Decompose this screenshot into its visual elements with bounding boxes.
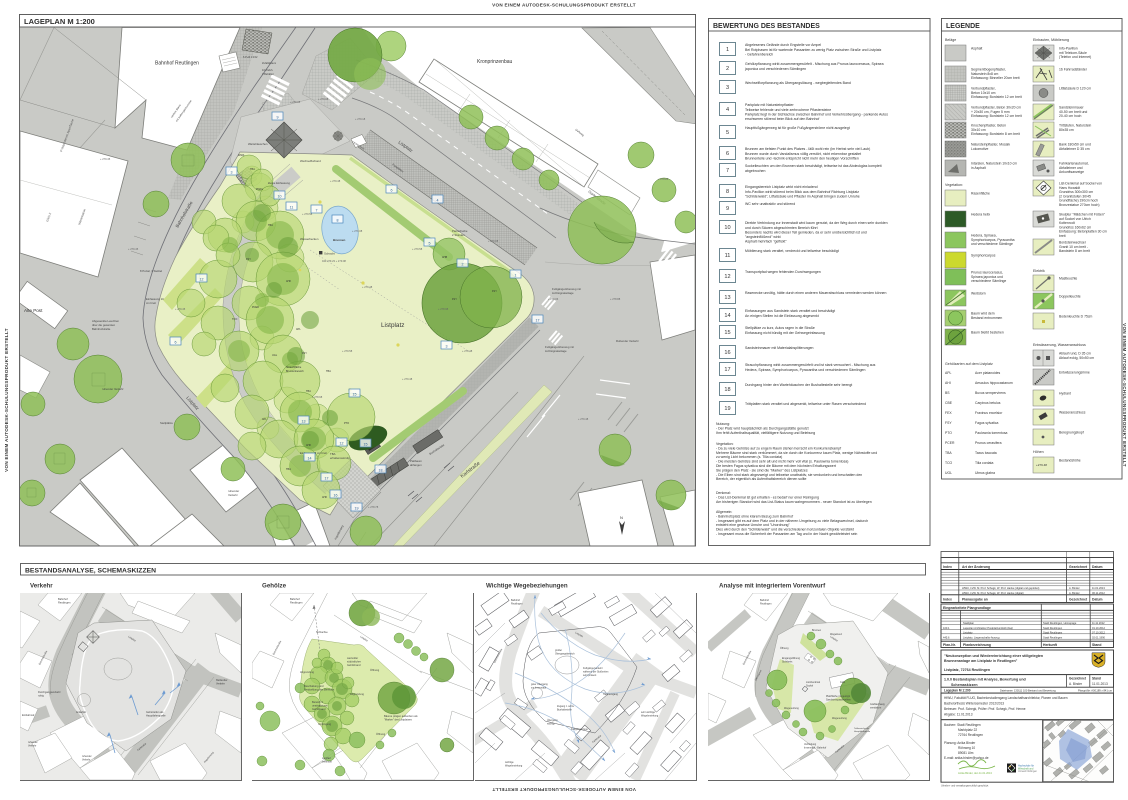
svg-text:13: 13 <box>302 420 306 424</box>
svg-text:Ablauf eckig, 50x50 cm: Ablauf eckig, 50x50 cm <box>1059 356 1094 360</box>
svg-text:PCER: PCER <box>945 441 955 445</box>
svg-text:+ 278.68: + 278.68 <box>312 395 323 399</box>
svg-text:+ 279.08: + 279.08 <box>352 229 363 233</box>
svg-text:2: 2 <box>726 66 729 72</box>
svg-text:und durch Säuren abgeschirmten: und durch Säuren abgeschirmten Bereich f… <box>745 226 818 230</box>
svg-text:Trittplatten stark veraltet un: Trittplatten stark veraltet und abgesenk… <box>745 402 866 406</box>
svg-text:Lageplan M 1:200: Lageplan M 1:200 <box>944 689 971 693</box>
svg-text:4: 4 <box>437 199 439 203</box>
svg-text:Verkehr: Verkehr <box>82 759 90 762</box>
svg-text:Sichtkreis: Sichtkreis <box>782 661 793 664</box>
svg-text:VON EINEM AUTODESK-SCHULUNGSPR: VON EINEM AUTODESK-SCHULUNGSPRODUKT ERST… <box>492 3 636 8</box>
svg-text:PTO: PTO <box>344 422 349 425</box>
svg-text:80x35 cm: 80x35 cm <box>1059 128 1074 132</box>
svg-text:72764 Reutlingen: 72764 Reutlingen <box>958 733 983 737</box>
svg-text:3: 3 <box>231 171 233 175</box>
svg-text:Ruhender Verkehr: Ruhender Verkehr <box>616 339 639 343</box>
svg-text:+ 279.48: + 279.48 <box>362 285 373 289</box>
svg-text:UGL: UGL <box>945 471 952 475</box>
svg-text:Strauchpflanzung wirkt zusamme: Strauchpflanzung wirkt zusammengewürfelt… <box>745 363 876 367</box>
svg-text:UGL: UGL <box>272 354 278 357</box>
svg-text:Info-Pavillon wirkt störend be: Info-Pavillon wirkt störend beim Blick a… <box>745 190 859 194</box>
svg-text:TBA: TBA <box>250 168 255 171</box>
svg-text:17: 17 <box>325 477 329 481</box>
svg-text:kleine Einfassung: kleine Einfassung <box>268 181 290 185</box>
svg-text:445.6: 445.6 <box>943 636 950 640</box>
svg-text:TBA: TBA <box>945 451 952 455</box>
svg-text:Hedera, Spiraea, Symphoricarpo: Hedera, Spiraea, Symphoricarpos, Pyracan… <box>745 368 865 372</box>
svg-text:Verjüngung: Verjüngung <box>318 722 332 726</box>
svg-text:Wegebeziehung: Wegebeziehung <box>505 765 523 768</box>
svg-text:06.11.2012: 06.11.2012 <box>1092 591 1105 595</box>
svg-text:Rasenecke unnötig, hätte durch: Rasenecke unnötig, hätte durch einen and… <box>745 291 887 295</box>
svg-text:Gezeichnet: Gezeichnet <box>1069 598 1088 602</box>
svg-text:entsteht eine gewisse Unruhe u: entsteht eine gewisse Unruhe und "Unordn… <box>716 523 790 527</box>
svg-text:An einigen Stellen ist die Ein: An einigen Stellen ist die Einfassung ab… <box>745 314 819 318</box>
svg-text:17: 17 <box>536 319 540 323</box>
svg-text:- Da zu viele Gehölze auf zu e: - Da zu viele Gehölze auf zu engem Raum … <box>716 446 841 450</box>
svg-text:TCO: TCO <box>232 318 237 321</box>
svg-text:Direkte Verbindung zur Innenst: Direkte Verbindung zur Innenstadt wird k… <box>745 221 888 225</box>
svg-text:+ 279.48: + 279.48 <box>402 377 413 381</box>
svg-text:Parkplatz mit Natursteinpflast: Parkplatz mit Natursteinpflaster <box>745 103 794 107</box>
svg-text:CBE: CBE <box>945 401 953 405</box>
svg-text:10: 10 <box>724 225 730 231</box>
svg-text:Stellplätze zu kurz, Autos rag: Stellplätze zu kurz, Autos ragen in die … <box>745 326 815 330</box>
svg-text:+ 279.08: + 279.08 <box>318 97 329 101</box>
svg-text:+ 278.98: + 278.98 <box>438 307 449 311</box>
svg-text:Analyse mit integriertem Voren: Analyse mit integriertem Vorentwurf <box>719 583 826 590</box>
svg-text:Stadt Reutlingen: Stadt Reutlingen <box>1043 630 1063 634</box>
svg-text:Beläge: Beläge <box>945 38 956 42</box>
svg-text:Ulmus glabra: Ulmus glabra <box>975 471 995 475</box>
svg-text:Taxus baccata: Taxus baccata <box>975 451 997 455</box>
svg-text:100.1: 100.1 <box>943 626 950 630</box>
svg-text:Fußgängerzone: Fußgängerzone <box>571 728 589 731</box>
svg-text:+279.48: +279.48 <box>1036 463 1047 467</box>
svg-text:1: 1 <box>726 47 729 53</box>
svg-text:Fagus sylvatica: Fagus sylvatica <box>975 421 998 425</box>
svg-text:Brunnen: Brunnen <box>812 629 822 632</box>
svg-text:APL: APL <box>296 328 301 331</box>
svg-text:Wasserbecken: Wasserbecken <box>300 237 319 241</box>
svg-text:Litfaßsäule D 120 cm: Litfaßsäule D 120 cm <box>1059 87 1091 91</box>
svg-text:- Gefahrenbereich: - Gefahrenbereich <box>745 52 773 56</box>
svg-text:ruhender Verkehr: ruhender Verkehr <box>102 387 124 391</box>
svg-text:APL: APL <box>262 418 267 421</box>
svg-text:18: 18 <box>379 469 383 473</box>
svg-text:Zufallsbaum: Zufallsbaum <box>262 61 276 65</box>
svg-text:HfWU, Fakultät FLUG, Bachelors: HfWU, Fakultät FLUG, Bachelorstudiengang… <box>944 696 1068 700</box>
svg-text:3 Behälter: 3 Behälter <box>262 72 274 76</box>
svg-text:VON EINEM AUTODESK-SCHULUNGSPR: VON EINEM AUTODESK-SCHULUNGSPRODUKT ERST… <box>1122 323 1127 467</box>
svg-text:"angsteinflößend" wirkt: "angsteinflößend" wirkt <box>745 235 781 239</box>
svg-text:Nutzung:: Nutzung: <box>716 422 730 426</box>
svg-text:Aesculus hippocastanum: Aesculus hippocastanum <box>975 381 1013 385</box>
svg-text:6: 6 <box>175 341 177 345</box>
svg-text:Planausgabe an: Planausgabe an <box>962 598 988 602</box>
svg-text:Tilia cordata: Tilia cordata <box>975 461 993 465</box>
svg-text:Bahnhof Reutlingen: Bahnhof Reutlingen <box>155 61 199 67</box>
svg-text:FSY: FSY <box>302 352 307 355</box>
svg-text:Buxus sempervirens: Buxus sempervirens <box>975 391 1006 395</box>
svg-text:- Das List-Denkmal ist gut erh: - Das List-Denkmal ist gut erhalten - es… <box>716 495 819 499</box>
svg-text:Einfassung: Bordstein 12 cm br: Einfassung: Bordstein 12 cm breit <box>971 114 1022 118</box>
svg-text:+ 278.78: + 278.78 <box>368 505 379 509</box>
svg-text:Verkehr: Verkehr <box>30 583 53 590</box>
svg-text:+ 279.18: + 279.18 <box>355 117 366 121</box>
svg-text:und verschiedene Sämlinge: und verschiedene Sämlinge <box>971 242 1013 246</box>
svg-text:Datum: Datum <box>1092 598 1103 602</box>
svg-text:erschweren störend beim Blick: erschweren störend beim Blick auf den Ba… <box>745 117 819 121</box>
svg-text:+ 279.06: + 279.06 <box>548 297 559 301</box>
svg-text:Rasenfläche: Rasenfläche <box>971 192 990 196</box>
svg-text:Abgrenzung: Abgrenzung <box>300 670 315 674</box>
svg-text:LAGEPLAN M 1:200: LAGEPLAN M 1:200 <box>24 17 95 26</box>
svg-text:13: 13 <box>724 295 730 301</box>
svg-text:Transportpfad wegen fehlenden: Transportpfad wegen fehlenden Durchwegun… <box>745 270 821 274</box>
svg-text:abfangen: abfangen <box>410 463 422 467</box>
svg-text:Hauptfahrsquelle: Hauptfahrsquelle <box>146 714 166 718</box>
svg-text:Mastleuchte: Mastleuchte <box>1059 277 1077 281</box>
svg-text:Sie prägen den Platz - sie sin: Sie prägen den Platz - sie sind die "Mar… <box>716 468 808 472</box>
svg-text:zur Innenstadt: zur Innenstadt <box>531 687 546 690</box>
svg-text:19: 19 <box>724 406 730 412</box>
svg-text:verstärken: verstärken <box>870 707 882 710</box>
svg-text:verschiedene Sämlinge: verschiedene Sämlinge <box>971 279 1006 283</box>
svg-text:Gehölze: Gehölze <box>262 583 287 590</box>
svg-text:Beschattung und: Beschattung und <box>304 684 324 688</box>
svg-text:AHK: AHK <box>306 444 311 447</box>
svg-text:Sockelleuchten um den Brunnen: Sockelleuchten um den Brunnen stark besc… <box>745 164 882 168</box>
svg-text:"Schilderwald", Litfaßsäule un: "Schilderwald", Litfaßsäule und Pflaster… <box>745 194 860 198</box>
svg-text:TBA: TBA <box>326 370 331 373</box>
svg-text:Wildb: Wildb <box>238 154 245 157</box>
svg-text:12: 12 <box>724 274 730 280</box>
svg-text:Bereich 2: Bereich 2 <box>312 700 324 704</box>
svg-text:Asphalt mehrfach "geflickt": Asphalt mehrfach "geflickt" <box>745 240 787 244</box>
svg-text:2: 2 <box>462 263 464 267</box>
svg-text:+ 278.88: + 278.88 <box>610 297 621 301</box>
svg-text:02.01.1990: 02.01.1990 <box>1092 636 1106 640</box>
svg-text:2 Stunden: 2 Stunden <box>452 233 465 237</box>
svg-text:Listplatz, Liegenschafts-Auszu: Listplatz, Liegenschafts-Auszug <box>963 636 1000 640</box>
svg-text:16 Fahrradständer: 16 Fahrradständer <box>1059 68 1088 72</box>
svg-text:9: 9 <box>277 116 279 120</box>
svg-text:Eingearbeitete Plangrundlage: Eingearbeitete Plangrundlage <box>943 606 991 610</box>
svg-text:Besonders nachts wird dieser T: Besonders nachts wird dieser Teil gemied… <box>745 230 867 234</box>
svg-text:+ 279.58: + 279.58 <box>342 349 353 353</box>
svg-text:Wegebeziehung: Wegebeziehung <box>641 715 659 718</box>
svg-text:Gezeichnet: Gezeichnet <box>1069 677 1087 681</box>
svg-text:11.01.2013: 11.01.2013 <box>1092 682 1108 686</box>
svg-text:Index: Index <box>943 598 952 602</box>
svg-text:Wasseranschluss: Wasseranschluss <box>1059 411 1086 415</box>
svg-text:- Insgesamt gibt es auf dem Pl: - Insgesamt gibt es auf dem Platz und in… <box>716 519 868 523</box>
svg-text:9: 9 <box>726 206 729 212</box>
svg-text:Möblierung stark veraltet, ver: Möblierung stark veraltet, verdreckt und… <box>745 249 839 253</box>
svg-text:11.11.2012: 11.11.2012 <box>1092 621 1105 625</box>
svg-text:Durchgangsverkehr: Durchgangsverkehr <box>38 690 61 694</box>
svg-text:Prunus cerasifera: Prunus cerasifera <box>975 441 1002 445</box>
svg-text:A. Binder: A. Binder <box>1069 591 1080 595</box>
svg-text:Abgabe: 11.01.2013: Abgabe: 11.01.2013 <box>944 713 973 717</box>
svg-text:Ankunftsanzeige: Ankunftsanzeige <box>1059 170 1084 174</box>
svg-text:Cafe: Cafe <box>840 681 846 684</box>
svg-text:Parkplatz liegt in der Sichtac: Parkplatz liegt in der Sichtachse zwisch… <box>745 112 888 116</box>
svg-text:Lageplan Architektur Postplatz: Lageplan Architektur Postplatzumfeld (dw… <box>963 626 1013 630</box>
svg-text:20-40 cm hoch: 20-40 cm hoch <box>1059 114 1082 118</box>
svg-text:AHB: AHB <box>442 256 447 259</box>
svg-text:"Marker" des Listplatzes: "Marker" des Listplatzes <box>384 718 412 722</box>
svg-text:1: 1 <box>515 274 517 278</box>
svg-text:Sandsteinquaderreihen: Sandsteinquaderreihen <box>826 699 851 702</box>
svg-text:Wechselflorband: Wechselflorband <box>300 159 321 163</box>
svg-text:Stadt Reutlingen: Stadt Reutlingen <box>1043 626 1063 630</box>
svg-text:Symphoricarpos: Symphoricarpos <box>971 254 996 258</box>
svg-text:A. Binder: A. Binder <box>1069 586 1080 590</box>
svg-text:Hauptfahrtquelle: Hauptfahrtquelle <box>854 730 871 733</box>
svg-text:14: 14 <box>724 313 730 319</box>
svg-text:Bestand entnommen: Bestand entnommen <box>971 316 1002 320</box>
svg-text:WC sehr unattraktiv und stören: WC sehr unattraktiv und störend <box>745 202 795 206</box>
svg-text:14: 14 <box>308 457 312 461</box>
svg-text:Gezeichnet: Gezeichnet <box>1069 565 1088 569</box>
svg-text:Stellplätze: Stellplätze <box>160 421 173 425</box>
svg-text:Herkunft: Herkunft <box>1043 643 1058 647</box>
svg-text:Doppelleuchte: Doppelleuchte <box>1059 295 1081 299</box>
svg-text:11: 11 <box>725 253 731 259</box>
svg-text:Einbahnstr.: Einbahnstr. <box>22 713 35 717</box>
svg-text:Gehölzrand: Gehölzrand <box>312 707 326 711</box>
svg-text:Wechselflorpflanzung als Überg: Wechselflorpflanzung als Übergangslösung… <box>745 81 851 85</box>
svg-text:Listplatz: Listplatz <box>963 630 973 634</box>
svg-text:Verkehr: Verkehr <box>228 493 238 497</box>
svg-text:- Der Platz wird hauptsächlich: - Der Platz wird hauptsächlich als Durch… <box>716 426 809 430</box>
svg-text:Kronprinzenbau: Kronprinzenbau <box>477 59 513 65</box>
svg-text:Entwässerungsrinne: Entwässerungsrinne <box>1059 371 1090 375</box>
svg-text:+ 279.45: + 279.45 <box>100 157 111 161</box>
svg-text:Vegetation:: Vegetation: <box>716 442 734 446</box>
svg-text:6 P+R 13:02: 6 P+R 13:02 <box>243 55 258 59</box>
svg-text:VON EINEM AUTODESK-SCHULUNGSPR: VON EINEM AUTODESK-SCHULUNGSPRODUKT ERST… <box>4 328 9 472</box>
svg-text:940 279.23 + 279.08: 940 279.23 + 279.08 <box>322 259 346 263</box>
svg-text:6: 6 <box>391 189 393 193</box>
svg-text:+ 279.48: + 279.48 <box>462 349 473 353</box>
svg-text:Marktplatz 22: Marktplatz 22 <box>958 728 977 732</box>
svg-text:Bahnhof: Bahnhof <box>290 597 300 601</box>
svg-text:breit: breit <box>1059 234 1066 238</box>
svg-text:Bachelorthesis Wintersemester: Bachelorthesis Wintersemester 2012/2013 <box>944 702 1004 706</box>
svg-text:PCER: PCER <box>252 306 259 309</box>
svg-text:Röhrweg 10: Röhrweg 10 <box>958 746 975 750</box>
svg-text:Öffnung: Öffnung <box>780 647 789 650</box>
svg-text:Verkehr: Verkehr <box>28 745 36 748</box>
svg-text:Bei Rotphasen ist für wartende: Bei Rotphasen ist für wartende Passanten… <box>745 48 882 52</box>
svg-text:3: 3 <box>726 85 729 91</box>
svg-text:PTO: PTO <box>945 431 952 435</box>
svg-text:japonica und verschiedenen Säm: japonica und verschiedenen Sämlingen <box>744 67 806 71</box>
svg-text:unattraktivste: unattraktivste <box>312 704 328 708</box>
svg-text:BESTANDSANALYSE, SCHEMASKIZZEN: BESTANDSANALYSE, SCHEMASKIZZEN <box>25 568 156 575</box>
svg-text:"Neukonzeption und Wiedereinri: "Neukonzeption und Wiedereinrichtung ein… <box>944 654 1043 658</box>
svg-text:16: 16 <box>334 494 338 498</box>
svg-text:verbindet: verbindet <box>322 761 332 764</box>
svg-text:Eingangsbereich Listplatz wirk: Eingangsbereich Listplatz wirkt nicht ei… <box>745 185 818 189</box>
svg-text:07.10.2012: 07.10.2012 <box>1092 630 1106 634</box>
svg-text:AHK: AHK <box>286 280 291 283</box>
svg-text:zu wenig Licht bekommen (s. Ti: zu wenig Licht bekommen (s. Tilia cordat… <box>716 455 782 459</box>
svg-text:FSY: FSY <box>492 290 497 293</box>
svg-text:erhaltenswürdig: erhaltenswürdig <box>330 456 350 460</box>
svg-text:Asphalt: Asphalt <box>971 47 982 51</box>
svg-text:Teilbereiche als: Teilbereiche als <box>854 727 870 730</box>
svg-text:Stand: Stand <box>1092 643 1101 647</box>
svg-text:Übergangsbereich: Übergangsbereich <box>555 653 575 656</box>
svg-text:Höhen: Höhen <box>1033 450 1044 454</box>
svg-text:Elektrik: Elektrik <box>1033 269 1045 273</box>
svg-text:Stadt Reutlingen, Homepage: Stadt Reutlingen, Homepage <box>1043 621 1077 625</box>
svg-text:- Insgesamt muss die Sicherhei: - Insgesamt muss die Sicherheit der Pass… <box>716 532 857 536</box>
svg-text:Bahnhof: Bahnhof <box>58 597 68 601</box>
svg-text:TBA: TBA <box>286 468 291 471</box>
svg-text:Wegenetzung: Wegenetzung <box>832 717 847 720</box>
svg-text:Weißdorn: Weißdorn <box>971 292 986 296</box>
svg-text:11.01.2013: 11.01.2013 <box>1092 586 1105 590</box>
svg-text:+ 279.08: + 279.08 <box>290 100 301 104</box>
svg-text:Brunnen am tiefsten Punkt des: Brunnen am tiefsten Punkt des Platzes - … <box>745 147 870 151</box>
svg-text:Brunnen: Brunnen <box>333 238 346 242</box>
svg-text:01.10.2012: 01.10.2012 <box>1092 626 1106 630</box>
svg-text:Denkmal:: Denkmal: <box>716 491 731 495</box>
svg-text:AHK: AHK <box>322 496 327 499</box>
svg-text:Verkehr: Verkehr <box>216 682 225 686</box>
svg-text:8: 8 <box>726 189 729 195</box>
svg-text:Wichtige Wegebeziehungen: Wichtige Wegebeziehungen <box>486 583 568 590</box>
svg-text:Einfassungen aus Sandstein sta: Einfassungen aus Sandstein stark veralte… <box>745 309 835 313</box>
svg-text:Sockel: Sockel <box>806 685 814 688</box>
svg-text:in Asphalt: in Asphalt <box>971 166 986 170</box>
svg-text:Umwelt Nürtingen: Umwelt Nürtingen <box>1018 770 1038 773</box>
svg-text:Bauherr: Stadt Reutlingen: Bauherr: Stadt Reutlingen <box>944 723 981 727</box>
svg-text:Einfassung: Bordstein 8 cm bre: Einfassung: Bordstein 8 cm breit <box>971 132 1020 136</box>
svg-text:wichtig: wichtig <box>547 723 555 726</box>
svg-text:Öffnung: Öffnung <box>376 732 386 736</box>
svg-text:VON EINEM AUTODESK-SCHULUNGSPR: VON EINEM AUTODESK-SCHULUNGSPRODUKT ERST… <box>492 787 636 792</box>
svg-text:18: 18 <box>724 387 730 393</box>
svg-text:17: 17 <box>724 367 730 373</box>
svg-text:10: 10 <box>278 195 282 199</box>
svg-text:- Die meisten Gehölze sind seh: - Die meisten Gehölze sind sehr alt und … <box>716 460 848 464</box>
svg-text:Bushaltestelle: Bushaltestelle <box>557 709 573 712</box>
svg-text:Reutlingen: Reutlingen <box>760 603 772 606</box>
svg-text:8 Portal, 1 Siebtel: 8 Portal, 1 Siebtel <box>140 269 162 273</box>
svg-text:Datum: Datum <box>1092 565 1103 569</box>
svg-text:Innenstadt - Bahnhof: Innenstadt - Bahnhof <box>804 747 827 750</box>
svg-text:89081 Ulm: 89081 Ulm <box>958 751 974 755</box>
svg-text:Entwässerung, Wasseranschluss: Entwässerung, Wasseranschluss <box>1033 343 1086 347</box>
svg-text:11: 11 <box>290 206 294 210</box>
svg-text:AHI: AHI <box>945 381 951 385</box>
svg-text:Reutlingen: Reutlingen <box>290 601 303 605</box>
svg-text:Sichtachse: Sichtachse <box>316 631 328 634</box>
svg-text:ruhig: ruhig <box>38 694 44 698</box>
svg-text:Reutlingen: Reutlingen <box>58 601 71 605</box>
svg-text:7: 7 <box>316 209 318 213</box>
svg-text:südöstlicher: südöstlicher <box>347 660 361 664</box>
svg-text:15: 15 <box>353 393 357 397</box>
svg-text:Durchgang hinter den Wartehäus: Durchgang hinter den Wartehäuschen der B… <box>745 383 852 387</box>
svg-text:1.0.0 Bestandsplan mit Analys: 1.0.0 Bestandsplan mit Analyse, Bewertun… <box>944 678 1026 682</box>
svg-text:Carpinus betulus: Carpinus betulus <box>975 401 1001 405</box>
svg-text:Brunnenteile und -technik ents: Brunnenteile und -technik entspricht nic… <box>745 156 859 160</box>
svg-text:BEWERTUNG DES BESTANDES: BEWERTUNG DES BESTANDES <box>713 23 820 30</box>
svg-text:10 Parkh.: 10 Parkh. <box>262 68 273 72</box>
svg-text:+ 279.45: + 279.45 <box>128 247 139 251</box>
svg-text:Bestandshöhe: Bestandshöhe <box>1059 459 1081 463</box>
svg-text:Abgelesenes Gelände durch Engs: Abgelesenes Gelände durch Engstelle vor … <box>745 43 821 47</box>
svg-text:Dies wird durch den "Schilderw: Dies wird durch den "Schilderwald" und d… <box>716 528 854 532</box>
svg-text:N: N <box>620 515 623 520</box>
svg-text:Lichtsignalanlage: Lichtsignalanlage <box>545 349 567 353</box>
svg-text:TBA: TBA <box>268 224 273 227</box>
svg-text:Bahnhofstraße: Bahnhofstraße <box>92 327 111 331</box>
svg-text:- Bahnhofsplatz ohne klarem Be: - Bahnhofsplatz ohne klarem Bezug zum Ba… <box>716 514 793 518</box>
svg-text:Brunnenanlage am Listplatz in: Brunnenanlage am Listplatz in Reutlingen… <box>944 659 1018 663</box>
svg-text:4: 4 <box>726 107 729 113</box>
svg-text:12: 12 <box>200 278 204 282</box>
svg-text:Abgrenzung: Abgrenzung <box>350 692 365 696</box>
svg-text:Einbauten, Möblierung: Einbauten, Möblierung <box>1033 38 1069 42</box>
svg-text:Anika Binder, den 11.01.2013: Anika Binder, den 11.01.2013 <box>958 771 992 775</box>
svg-text:Brunnenbereich: Brunnenbereich <box>286 370 304 373</box>
svg-text:- Die Eiben sind stark abgezwe: - Die Eiben sind stark abgezweigt und te… <box>716 473 862 477</box>
svg-text:Hedera helix: Hedera helix <box>971 213 990 217</box>
svg-text:Alte Post: Alte Post <box>24 308 43 313</box>
svg-text:Lokomotive: Lokomotive <box>971 147 988 151</box>
svg-text:+ 279.45: + 279.45 <box>175 307 186 311</box>
svg-text:Dateiname: 130111 100 Bestand: Dateiname: 130111 100 Bestand und Bewert… <box>1000 689 1056 693</box>
svg-text:Beregnungskopf: Beregnungskopf <box>1059 431 1084 435</box>
svg-text:cm breit: cm breit <box>146 301 156 305</box>
svg-text:HfWU, LVW. M. Prof. Schegk, W.: HfWU, LVW. M. Prof. Schegk, W. Prof. Han… <box>962 586 1039 590</box>
svg-text:Index: Index <box>943 565 952 569</box>
svg-text:Einfassung: Binneller 20cm bre: Einfassung: Binneller 20cm breit <box>971 76 1020 80</box>
svg-text:15: 15 <box>364 443 368 447</box>
svg-text:Bodenleuchte D 75cm: Bodenleuchte D 75cm <box>1059 315 1093 319</box>
svg-text:Gehölzpflanzung wirkt zusammen: Gehölzpflanzung wirkt zusammengewürfelt … <box>745 62 884 66</box>
svg-text:Reutlingen: Reutlingen <box>511 603 523 606</box>
svg-text:wertvoller: wertvoller <box>347 656 358 660</box>
svg-text:Sandsteinmauer mit Materialabs: Sandsteinmauer mit Materialabsplitterung… <box>745 346 814 350</box>
svg-text:Teilweise fehlende und viele z: Teilweise fehlende und viele zerbrochene… <box>745 108 831 112</box>
svg-text:5: 5 <box>726 130 729 136</box>
svg-text:+ 279.08: + 279.08 <box>488 239 499 243</box>
svg-text:Einfassung: Betonplatten 30 cm: Einfassung: Betonplatten 30 cm <box>1059 230 1107 234</box>
svg-text:(Telefon und Internet): (Telefon und Internet) <box>1059 55 1091 59</box>
svg-text:Planbezeichnung: Planbezeichnung <box>963 643 991 647</box>
svg-text:Hydrant: Hydrant <box>1059 392 1071 396</box>
svg-text:Bäume prägen außerdem als: Bäume prägen außerdem als <box>384 714 418 718</box>
svg-text:Vegetation:: Vegetation: <box>945 183 963 187</box>
svg-text:LEGENDE: LEGENDE <box>946 23 980 30</box>
svg-text:+ 279.28: + 279.28 <box>658 177 669 181</box>
svg-text:3: 3 <box>446 345 448 349</box>
svg-text:fließender: fließender <box>216 678 228 682</box>
svg-text:Gehölzrand: Gehölzrand <box>347 663 361 667</box>
svg-text:Abfalleimer D 35 cm: Abfalleimer D 35 cm <box>1059 147 1090 151</box>
svg-text:Planung: Anika Binder: Planung: Anika Binder <box>944 741 976 745</box>
